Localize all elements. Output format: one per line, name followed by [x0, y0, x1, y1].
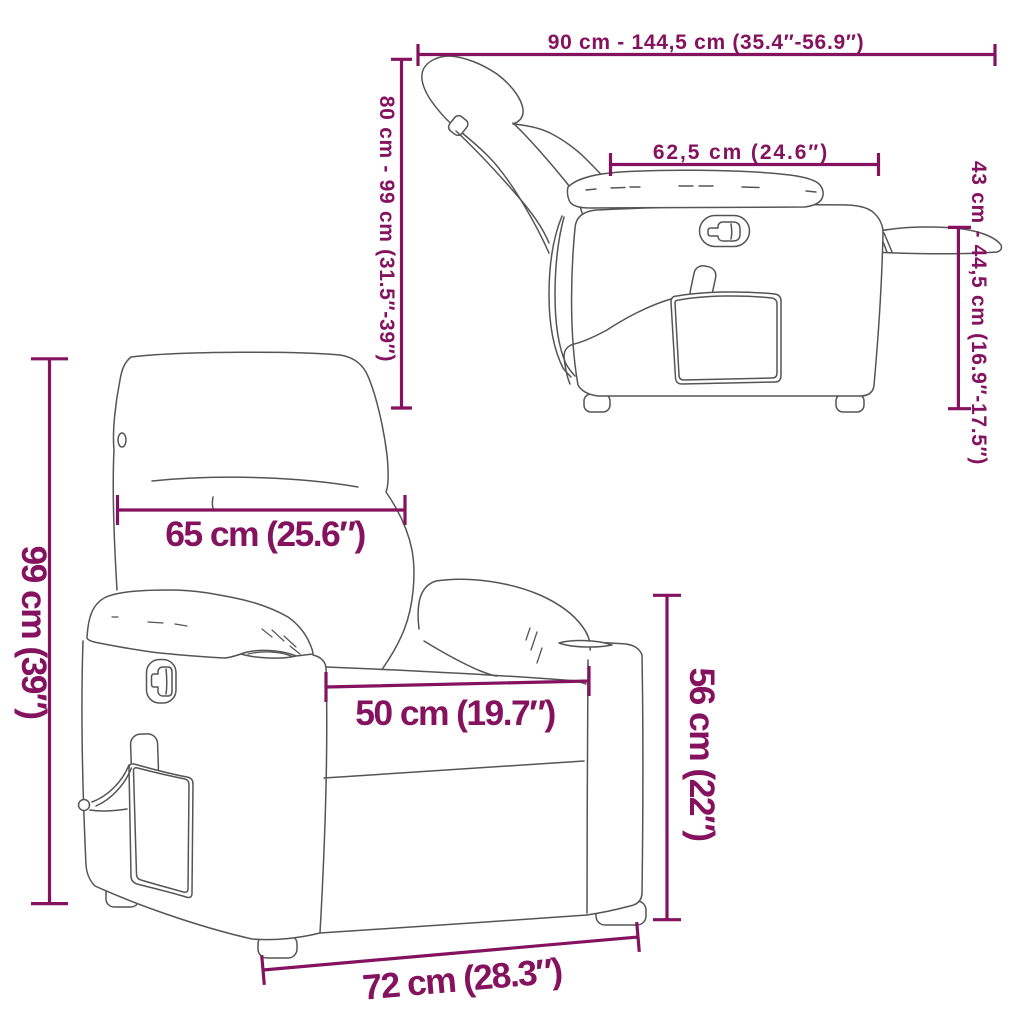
svg-text:43 cm - 44,5 cm (16.9″-17.5″): 43 cm - 44,5 cm (16.9″-17.5″): [967, 161, 990, 465]
svg-text:56 cm (22″): 56 cm (22″): [682, 667, 722, 841]
svg-text:90 cm - 144,5 cm (35.4″-56.9″): 90 cm - 144,5 cm (35.4″-56.9″): [548, 31, 865, 54]
svg-text:80 cm - 99 cm (31.5″-39″): 80 cm - 99 cm (31.5″-39″): [375, 96, 398, 362]
svg-text:62,5 cm (24.6″): 62,5 cm (24.6″): [653, 141, 829, 164]
svg-text:99 cm (39″): 99 cm (39″): [14, 545, 54, 719]
svg-text:50 cm (19.7″): 50 cm (19.7″): [355, 693, 555, 733]
svg-text:65 cm (25.6″): 65 cm (25.6″): [165, 514, 365, 554]
